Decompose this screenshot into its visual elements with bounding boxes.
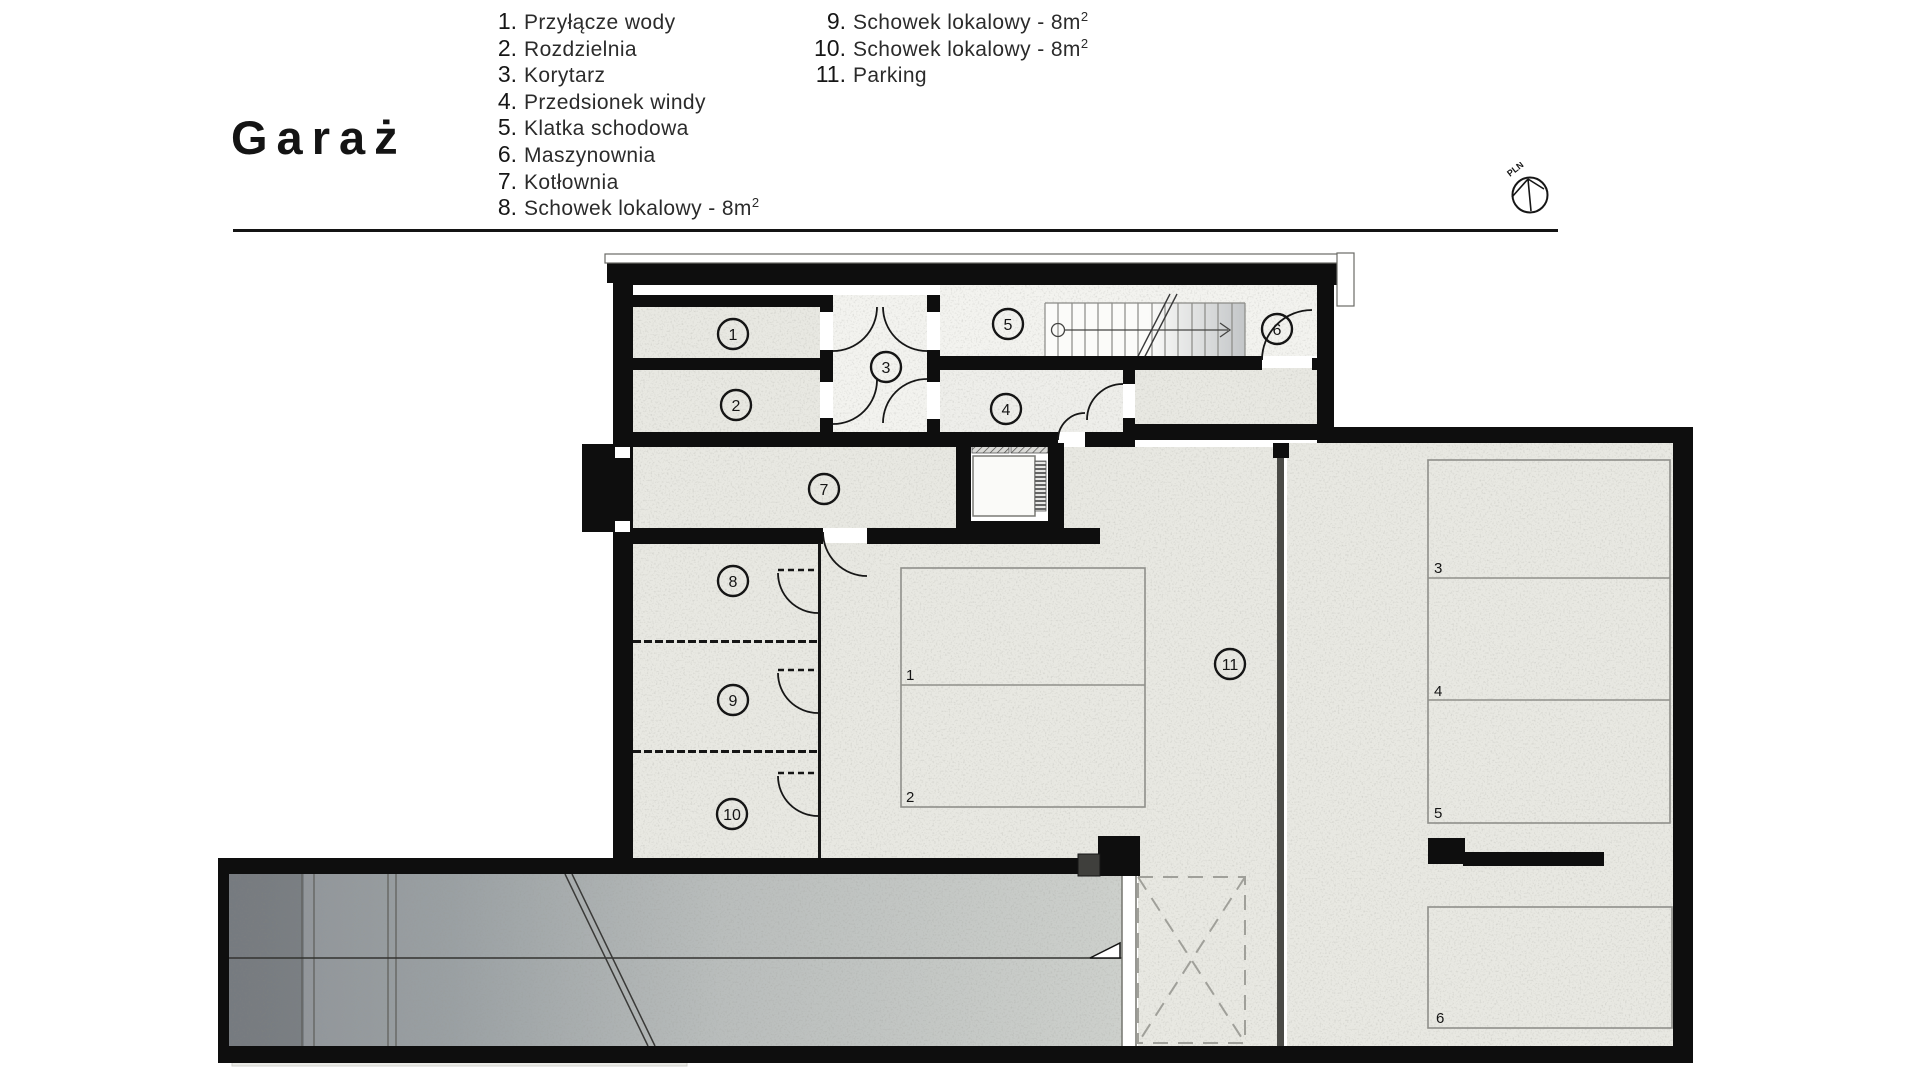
wall-room7-south-left [613,528,823,544]
wall-room2-room7 [633,432,1058,447]
right-wing-top-wall [1334,427,1693,443]
parking-spot-label-5: 5 [1434,805,1442,822]
room-2-floor [633,370,820,432]
elevator-counterweight [1035,461,1046,511]
wall-under-stairs [938,356,1262,370]
svg-text:1: 1 [729,327,738,344]
elevator [972,443,1048,516]
left-outer-wall [613,283,633,860]
wall-corridor-south [1123,424,1334,440]
parking-spot-label-4: 4 [1434,683,1442,700]
page: { "page": { "title": "Garaż" }, "legend"… [0,0,1920,1080]
right-outer-wall [1673,443,1693,1063]
ramp-dark-band [228,874,304,1046]
svg-text:5: 5 [1004,317,1013,334]
svg-text:2: 2 [732,398,741,415]
ramp-top-wall [218,858,1122,874]
floor-plan-svg: 1 2 3 4 5 6 7 8 9 10 11 1 2 3 4 5 6 [0,0,1920,1080]
ramp-surface [228,874,1122,1046]
parking-spot-label-3: 3 [1434,560,1442,577]
elevator-cab [973,456,1035,516]
parking-right-floor [1287,443,1673,1046]
room-1-floor [633,307,820,358]
parking-wall-block [1428,838,1465,864]
corridor-3-floor [833,295,927,435]
svg-text:7: 7 [820,482,829,499]
top-strip-end-cap [1337,253,1354,306]
svg-text:3: 3 [882,360,891,377]
svg-text:8: 8 [729,574,738,591]
parking-wall-bar [1463,852,1604,866]
parking-spot-label-1: 1 [906,667,914,684]
floors-layer [228,283,1673,1046]
top-wall-band [607,263,1354,285]
top-thin-strip [605,254,1351,263]
right-top-vertical-wall [1317,283,1334,443]
ramp-end-block [1098,836,1140,876]
svg-text:6: 6 [1273,322,1282,339]
svg-text:9: 9 [729,693,738,710]
bottom-outer-wall [218,1046,1693,1063]
wall-room1-room2 [633,358,833,370]
left-wall-protrusion [582,444,615,532]
ramp-left-wall [218,858,229,1060]
wall-room7-south-right [867,528,1100,544]
under-stairs-corridor-floor [1135,368,1317,424]
svg-text:10: 10 [723,807,741,824]
ramp-end-post [1078,854,1100,876]
parking-11-floor [818,543,1280,858]
lane-divider-line [1277,458,1284,1046]
lane-divider-cap [1273,443,1289,458]
svg-text:4: 4 [1002,402,1011,419]
room-4-floor [940,368,1123,432]
parking-spot-label-6: 6 [1436,1010,1444,1027]
svg-text:11: 11 [1222,657,1239,674]
parking-11-lower-floor [1138,858,1280,1046]
parking-spot-label-2: 2 [906,789,914,806]
room-7-floor [633,444,956,528]
